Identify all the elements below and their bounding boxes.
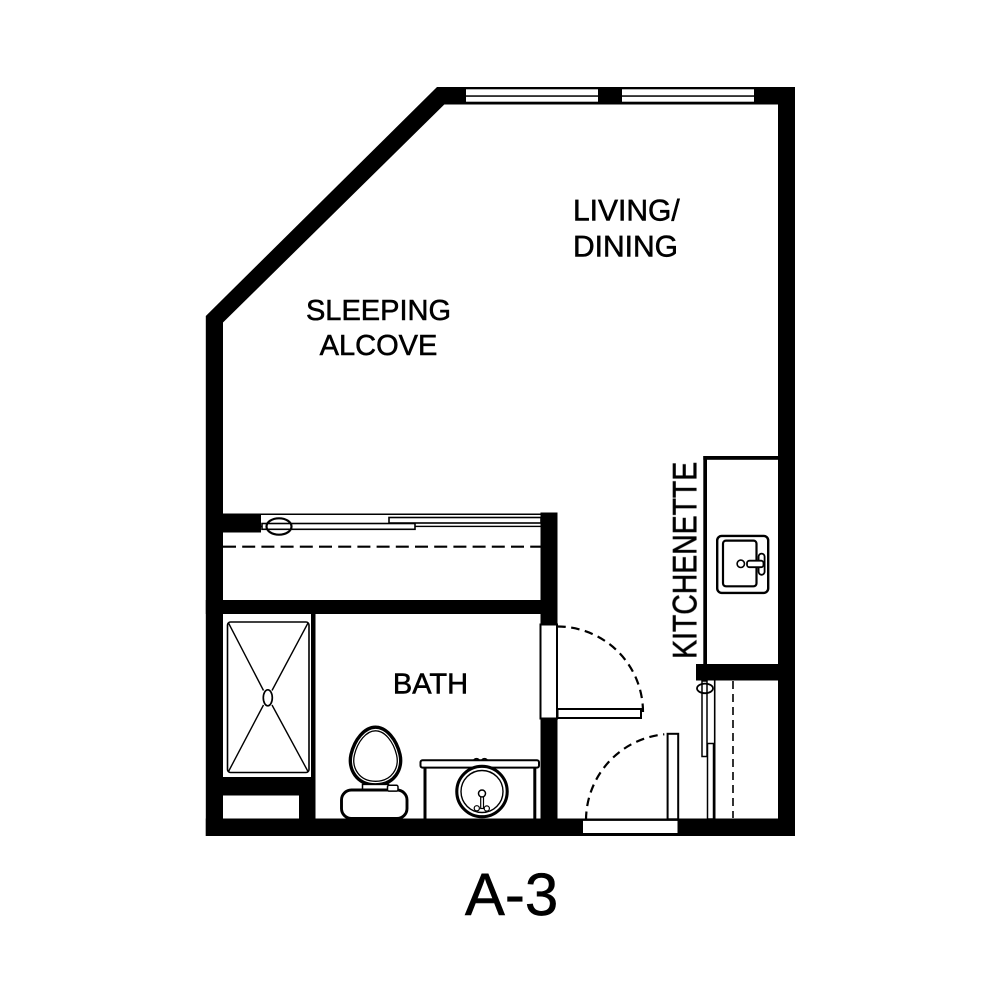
svg-text:LIVING/: LIVING/: [573, 195, 680, 228]
svg-text:ALCOVE: ALCOVE: [320, 330, 438, 362]
svg-text:A-3: A-3: [465, 861, 558, 928]
svg-text:SLEEPING: SLEEPING: [306, 295, 451, 327]
svg-text:KITCHENETTE: KITCHENETTE: [666, 462, 704, 659]
svg-text:BATH: BATH: [393, 669, 468, 701]
svg-text:DINING: DINING: [573, 231, 678, 264]
